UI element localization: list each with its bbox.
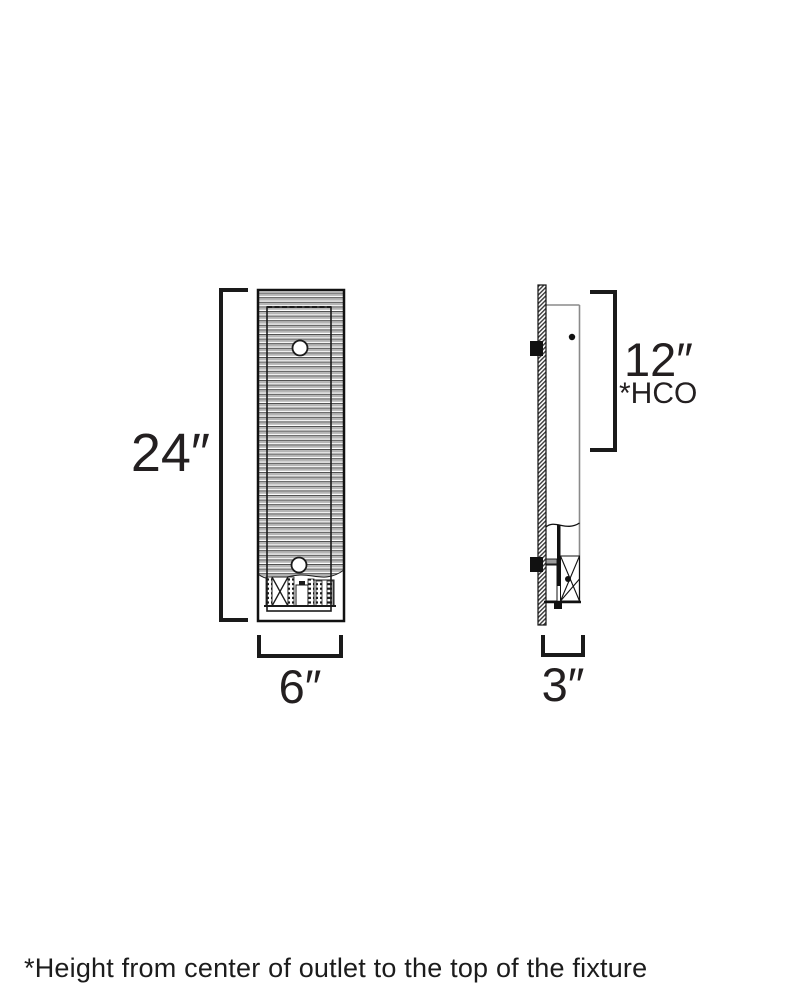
width-dimension-label: 6″: [257, 663, 343, 710]
brace-pin: [565, 576, 571, 582]
mount-tab-top: [530, 341, 543, 356]
dimension-diagram-page: { "diagram": { "front_view": { "height_l…: [0, 0, 799, 1000]
width-dimension-bracket: [257, 635, 343, 658]
back-plate: [538, 285, 546, 625]
hardware-arm: [546, 559, 557, 564]
hardware-housing: [546, 565, 557, 601]
driver-tab: [299, 581, 305, 585]
mounting-screw-bottom: [292, 558, 307, 573]
hardware-foot: [554, 603, 562, 609]
height-dimension-bracket: [219, 288, 248, 622]
hco-dimension-bracket: [590, 290, 617, 452]
fixture-profile-outline: [546, 305, 580, 603]
screw-dot: [569, 334, 575, 340]
terminal-strip: [308, 579, 314, 606]
side-hardware: [544, 523, 581, 609]
footnote: *Height from center of outlet to the top…: [24, 953, 647, 984]
driver-box: [296, 585, 308, 606]
lamp-hardware: [264, 577, 336, 606]
mount-tab-bottom: [530, 557, 543, 572]
hardware-post: [557, 525, 561, 586]
depth-dimension-label: 3″: [533, 661, 593, 708]
hco-note-label: *HCO: [619, 379, 697, 409]
front-view-drawing: [256, 288, 348, 626]
terminal-strip: [288, 577, 294, 606]
height-dimension-label: 24″: [130, 426, 210, 480]
hardware-wavy-edge: [546, 523, 580, 527]
hco-dimension-label: 12″: [624, 336, 693, 383]
mounting-screw-top: [293, 341, 308, 356]
terminal-strip: [327, 581, 333, 606]
terminal-strip: [316, 581, 322, 606]
depth-dimension-bracket: [541, 635, 585, 657]
